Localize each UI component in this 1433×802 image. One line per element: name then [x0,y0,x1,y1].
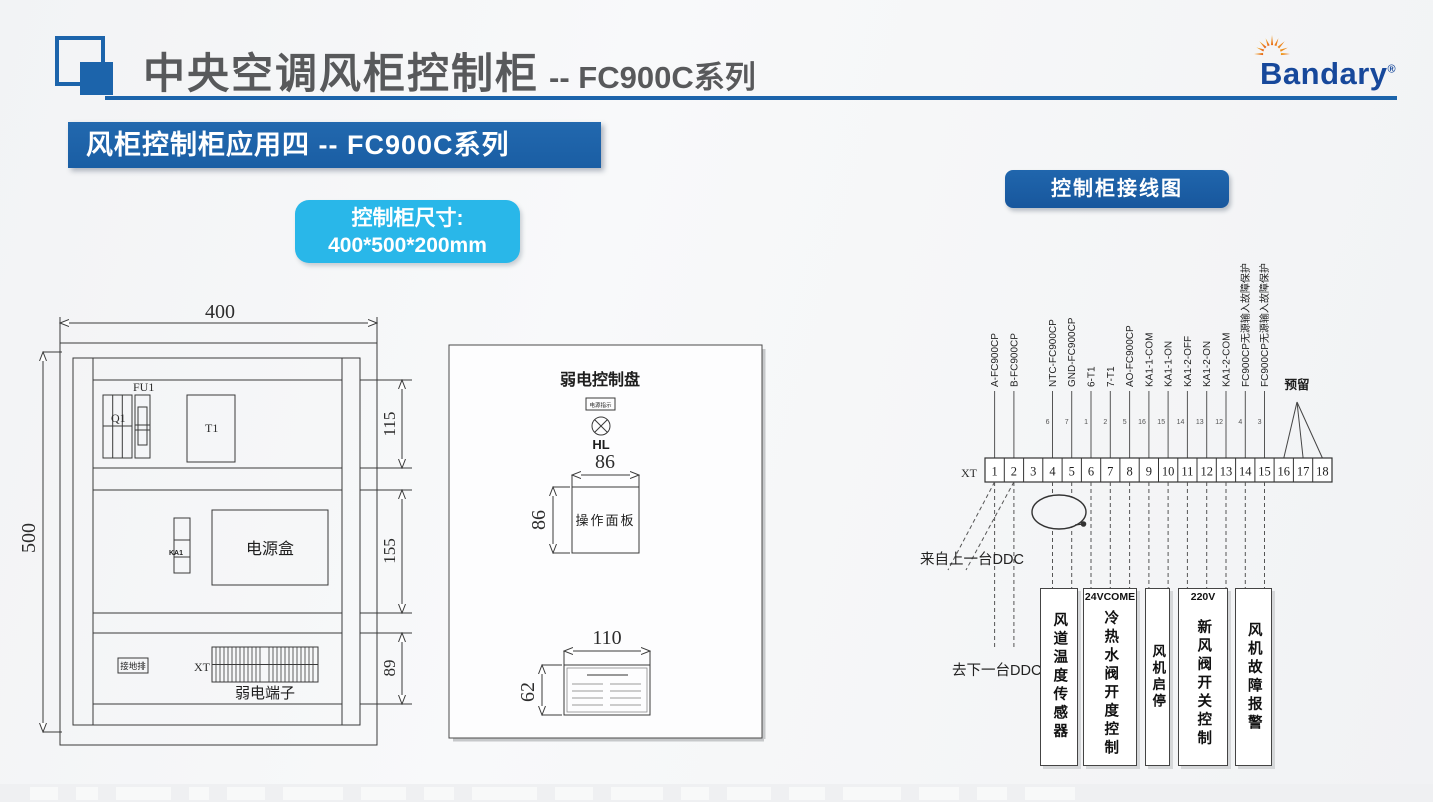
wire-label-5: GND-FC900CP [1067,317,1078,387]
wire-tag: 4 [1238,419,1242,426]
wire-tag: 3 [1258,419,1262,426]
terminal-6: 6 [1088,465,1094,479]
wire-label-4: NTC-FC900CP [1048,319,1059,387]
bandary-logo: Bandary® [1246,44,1406,94]
wire-label-7: 7-T1 [1106,366,1117,387]
wire-label-15: FC900CP无源输入故障保护 [1258,263,1271,387]
wire-label-8: AO-FC900CP [1125,325,1136,387]
wire-label-9: KA1-1-COM [1144,333,1155,387]
wire-labels: A-FC900CP B-FC900CP NTC-FC900CP GND-FC90… [990,263,1271,387]
header-square-fill-icon [80,62,113,95]
registered-mark: ® [1388,64,1397,76]
load-box-text: 新风阀开关控制 [1196,619,1211,749]
page-title-suffix: -- FC900C系列 [549,60,756,95]
dim-155: 155 [380,538,399,564]
wire-label-2: B-FC900CP [1009,333,1020,387]
load-box-fresh-air-valve: 220V 新风阀开关控制 [1178,588,1228,766]
wire-tag: 5 [1123,419,1127,426]
wire-tag: 14 [1177,419,1185,426]
terminal-2: 2 [1011,465,1017,479]
power-indicator-label: 电源指示 [589,401,612,409]
wire-label-11: KA1-2-OFF [1183,336,1194,387]
terminal-5: 5 [1069,465,1075,479]
load-box-header: 24VCOME [1085,591,1135,603]
wire-number-tags: 6 7 1 2 5 16 15 14 13 12 4 3 [1046,419,1262,426]
footer-block [283,787,343,800]
cabinet-size-line1: 控制柜尺寸: [295,205,520,232]
reserved-label: 预留 [1284,377,1309,392]
terminal-1: 1 [991,465,997,479]
footer-block [681,787,709,800]
cabinet-size-line2: 400*500*200mm [295,232,520,259]
header-rule [105,96,1397,100]
dim-86-left: 86 [528,510,550,530]
terminal-17: 17 [1297,465,1310,479]
operation-panel-label: 操作面板 [575,513,635,528]
load-box-header: 220V [1191,591,1216,603]
footer-strip [0,784,1433,802]
cabinet-size-callout: 控制柜尺寸: 400*500*200mm [295,200,520,263]
footer-block [361,787,406,800]
footer-block [919,787,959,800]
footer-block [424,787,454,800]
footer-block [30,787,58,800]
temp-sensor-symbol [1032,495,1086,529]
load-box-text: 风机故障报警 [1246,622,1261,733]
slide: 中央空调风柜控制柜-- FC900C系列 Bandary® 风柜控制柜应用四 -… [0,0,1433,802]
footer-block [189,787,209,800]
section-banner: 风柜控制柜应用四 -- FC900C系列 [68,122,601,168]
wire-label-13: KA1-2-COM [1222,333,1233,387]
terminal-13: 13 [1220,465,1233,479]
dim-400: 400 [205,301,235,323]
reserved-fan-lines [1284,402,1323,458]
wiring-diagram: A-FC900CP B-FC900CP NTC-FC900CP GND-FC90… [920,215,1425,790]
terminal-10: 10 [1162,465,1175,479]
dim-110: 110 [592,627,621,649]
xt-strip: 1 2 3 4 5 6 7 8 9 10 11 12 13 14 15 16 1… [985,458,1332,482]
terminal-12: 12 [1200,465,1213,479]
from-previous-ddc-label: 来自上一台DDC [920,548,1024,569]
terminal-16: 16 [1278,465,1291,479]
footer-block [1025,787,1075,800]
wire-label-12: KA1-2-ON [1202,341,1213,387]
terminal-14: 14 [1239,465,1252,479]
footer-block [472,787,537,800]
footer-block [843,787,901,800]
wire-label-10: KA1-1-ON [1164,341,1175,387]
terminal-7: 7 [1107,465,1113,479]
page-title: 中央空调风柜控制柜-- FC900C系列 [143,40,756,101]
dim-500: 500 [20,523,40,553]
wire-label-14: FC900CP无源输入故障保护 [1239,263,1252,387]
terminal-11: 11 [1181,465,1193,479]
wire-label-1: A-FC900CP [990,333,1001,387]
load-box-duct-temp-sensor: 风道温度传感器 [1040,588,1078,766]
footer-block [789,787,825,800]
load-box-text: 风道温度传感器 [1052,612,1067,742]
wire-tag: 13 [1196,419,1204,426]
cabinet-xt-label: XT [194,660,211,674]
terminal-18: 18 [1316,465,1329,479]
cabinet-lines [43,317,412,745]
wire-lines [995,391,1265,458]
fu1-label: FU1 [133,380,154,394]
power-box-label: 电源盒 [246,540,294,558]
terminal-9: 9 [1146,465,1152,479]
wire-tag: 16 [1138,419,1146,426]
footer-block [611,787,663,800]
page-title-main: 中央空调风柜控制柜 [143,50,539,97]
wire-tag: 2 [1103,419,1107,426]
terminal-3: 3 [1030,465,1036,479]
hl-lamp-label: HL [592,437,609,452]
weak-terminals-label: 弱电端子 [235,685,295,702]
logo-text: Bandary® [1260,56,1396,92]
q1-label: Q1 [111,411,126,425]
load-box-fan-start-stop: 风机启停 [1145,588,1170,766]
wire-label-6: 6-T1 [1087,366,1098,387]
terminal-15: 15 [1258,465,1271,479]
terminal-8: 8 [1126,465,1132,479]
load-box-fan-fault-alarm: 风机故障报警 [1235,588,1272,766]
panel-title: 弱电控制盘 [560,370,640,389]
logo-wordmark: Bandary [1260,56,1388,91]
t1-label: T1 [205,421,218,435]
panel-door-drawing: 弱电控制盘 电源指示 HL 86 86 操作面板 110 62 [445,335,775,745]
dim-86-top: 86 [595,451,615,473]
ground-bar-label: 接地排 [120,661,146,671]
wiring-diagram-badge: 控制柜接线图 [1005,170,1229,208]
footer-block [555,787,593,800]
footer-block [116,787,171,800]
wire-tag: 15 [1157,419,1165,426]
to-next-ddc-label: 去下一台DDC [952,659,1041,680]
dim-115: 115 [380,412,399,437]
footer-block [227,787,265,800]
footer-block [76,787,98,800]
load-box-text: 风机启停 [1151,644,1165,710]
wire-tag: 1 [1084,419,1088,426]
dim-62: 62 [517,682,539,702]
load-box-text: 冷热水阀开度控制 [1103,610,1118,758]
wire-tag: 7 [1065,419,1069,426]
footer-block [977,787,1007,800]
footer-block [727,787,771,800]
load-box-water-valve: 24VCOME 冷热水阀开度控制 [1083,588,1137,766]
wire-tag: 6 [1046,419,1050,426]
terminal-4: 4 [1049,465,1056,479]
xt-strip-label: XT [961,466,978,480]
cabinet-front-drawing: 400 500 Q1 FU1 T1 KA1 电源盒 接地排 XT 弱电端子 11… [20,295,440,765]
wire-tag: 12 [1215,419,1223,426]
ka1-label: KA1 [169,550,183,557]
dim-89: 89 [380,660,399,677]
